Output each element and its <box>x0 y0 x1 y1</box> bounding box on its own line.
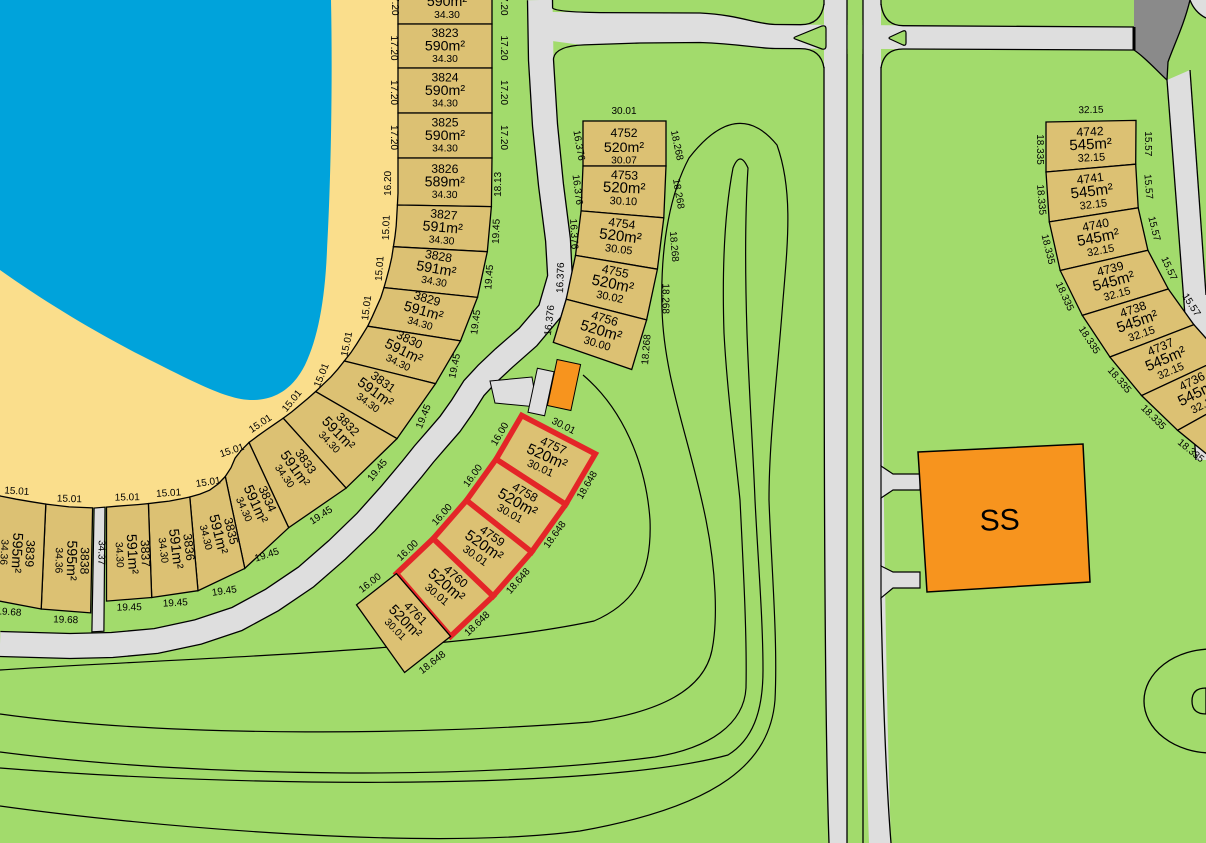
svg-text:34.36: 34.36 <box>0 539 10 566</box>
svg-text:17.20: 17.20 <box>498 35 509 60</box>
svg-text:30.07: 30.07 <box>611 156 637 167</box>
svg-text:17.20: 17.20 <box>498 0 509 16</box>
svg-text:15.57: 15.57 <box>1142 131 1153 156</box>
svg-text:590m²: 590m² <box>425 39 465 55</box>
svg-text:15.01: 15.01 <box>381 214 393 240</box>
svg-text:19.45: 19.45 <box>117 602 143 613</box>
svg-text:591m²: 591m² <box>123 534 141 575</box>
svg-text:15.01: 15.01 <box>374 255 387 281</box>
svg-text:34.36: 34.36 <box>52 547 63 573</box>
svg-text:595m²: 595m² <box>7 532 25 573</box>
svg-text:17.20: 17.20 <box>388 80 399 105</box>
svg-text:34.37: 34.37 <box>95 540 106 566</box>
svg-text:590m²: 590m² <box>425 128 465 144</box>
svg-text:34.30: 34.30 <box>432 144 458 155</box>
svg-text:16.376: 16.376 <box>555 262 567 293</box>
svg-text:595m²: 595m² <box>63 540 80 581</box>
svg-text:30.10: 30.10 <box>609 195 637 208</box>
svg-text:34.30: 34.30 <box>113 542 125 569</box>
svg-text:17.20: 17.20 <box>498 80 509 105</box>
svg-text:19.45: 19.45 <box>483 264 496 290</box>
svg-text:17.20: 17.20 <box>498 125 509 150</box>
svg-text:19.68: 19.68 <box>53 614 79 626</box>
svg-text:15.01: 15.01 <box>57 494 83 506</box>
svg-text:34.30: 34.30 <box>428 234 455 247</box>
svg-text:19.45: 19.45 <box>163 597 189 610</box>
svg-text:32.15: 32.15 <box>1078 105 1104 116</box>
svg-text:589m²: 589m² <box>425 174 466 190</box>
svg-text:34.30: 34.30 <box>434 10 460 21</box>
svg-text:520m²: 520m² <box>604 140 644 156</box>
svg-text:15.01: 15.01 <box>156 487 182 500</box>
svg-text:590m²: 590m² <box>425 83 465 99</box>
svg-text:15.57: 15.57 <box>1141 174 1154 200</box>
svg-text:30.01: 30.01 <box>611 106 636 117</box>
svg-text:16.20: 16.20 <box>383 170 394 196</box>
svg-text:17.20: 17.20 <box>388 125 399 150</box>
svg-text:34.30: 34.30 <box>432 54 458 65</box>
svg-text:15.01: 15.01 <box>4 485 30 498</box>
svg-text:17.20: 17.20 <box>388 35 399 60</box>
svg-text:16.376: 16.376 <box>567 219 580 251</box>
svg-text:19.45: 19.45 <box>491 218 503 244</box>
svg-text:15.01: 15.01 <box>115 492 141 503</box>
svg-text:4752: 4752 <box>610 126 637 140</box>
svg-text:SS: SS <box>979 503 1020 537</box>
svg-text:17.20: 17.20 <box>389 0 400 16</box>
svg-text:19.68: 19.68 <box>0 606 22 619</box>
svg-text:18.268: 18.268 <box>659 283 670 314</box>
svg-text:18.335: 18.335 <box>1034 134 1045 165</box>
svg-text:34.30: 34.30 <box>432 99 458 110</box>
svg-text:590m²: 590m² <box>427 0 467 10</box>
svg-text:32.15: 32.15 <box>1077 151 1105 164</box>
svg-text:18.13: 18.13 <box>493 171 504 197</box>
svg-text:34.30: 34.30 <box>432 190 458 201</box>
